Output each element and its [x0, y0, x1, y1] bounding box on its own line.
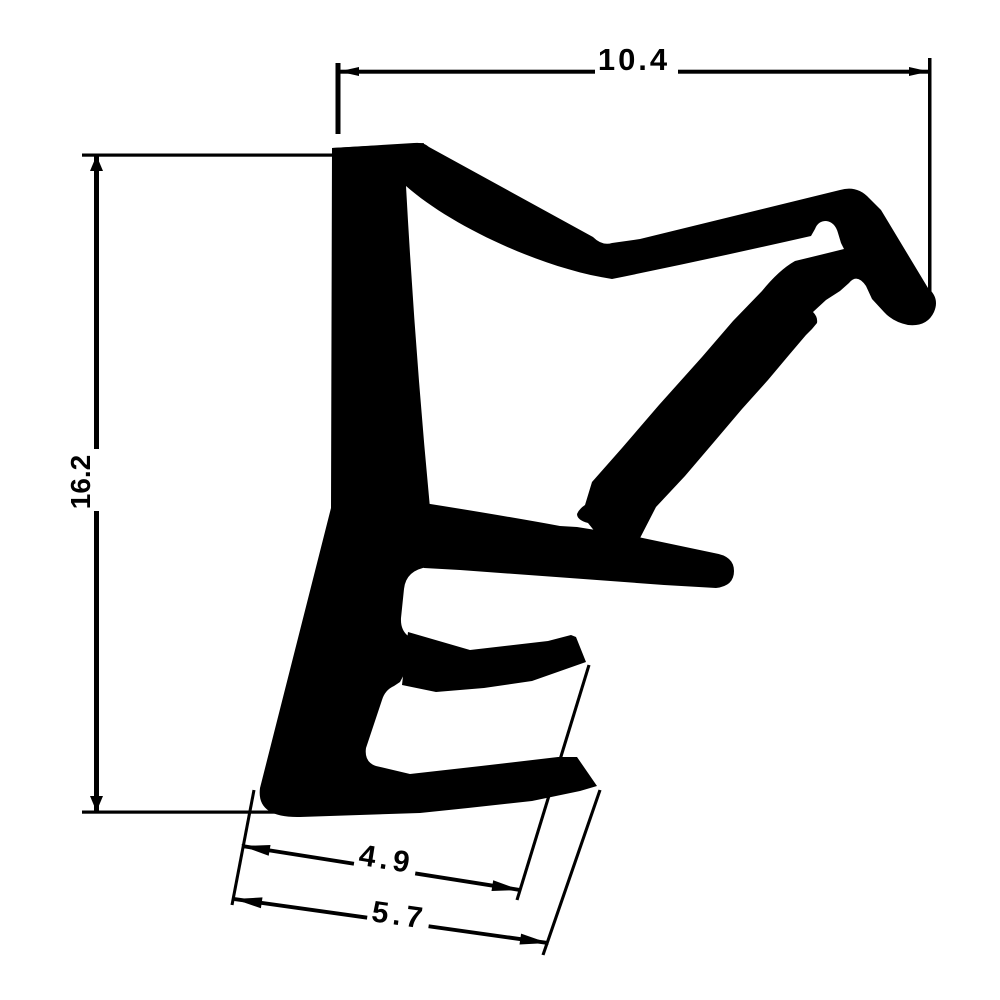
svg-text:16.2: 16.2: [65, 455, 96, 510]
svg-text:10.4: 10.4: [598, 42, 670, 77]
